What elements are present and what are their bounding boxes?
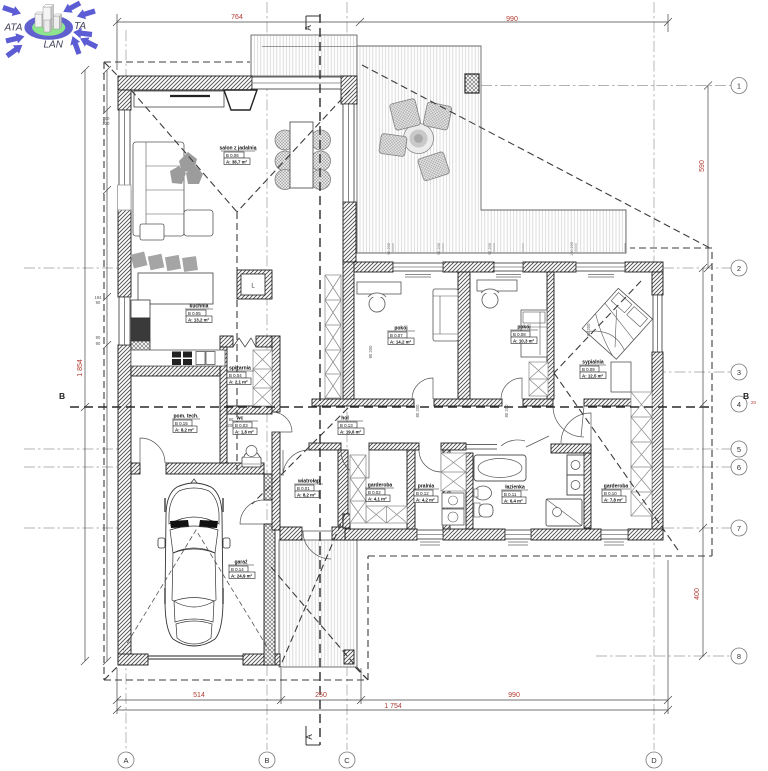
svg-text:1: 1 [737,82,741,91]
svg-text:80 200: 80 200 [586,323,591,336]
svg-text:A: 14,2 m²: A: 14,2 m² [390,339,412,344]
svg-text:80: 80 [96,335,101,340]
svg-text:A: 10,3 m²: A: 10,3 m² [513,338,535,343]
svg-text:ATA: ATA [4,23,23,34]
svg-text:2: 2 [737,264,741,273]
svg-text:garderoba: garderoba [368,483,393,489]
svg-text:B 0.08: B 0.08 [513,332,526,337]
svg-text:pralnia: pralnia [418,484,435,490]
svg-text:A: A [305,734,314,740]
svg-text:A: 24,9 m²: A: 24,9 m² [231,573,253,578]
svg-text:B 0.15: B 0.15 [175,421,188,426]
svg-text:B: B [264,756,269,765]
svg-text:B 0.06: B 0.06 [226,153,239,158]
svg-text:7: 7 [737,524,741,533]
svg-text:A: 7,8 m²: A: 7,8 m² [604,497,623,502]
svg-text:A: 8,2 m²: A: 8,2 m² [175,427,194,432]
svg-text:hol: hol [341,416,349,422]
svg-text:pokój: pokój [394,326,408,332]
svg-text:pokój: pokój [517,325,531,331]
svg-text:90 200: 90 200 [437,243,441,255]
svg-text:B 0.05: B 0.05 [188,311,201,316]
svg-text:1 854: 1 854 [77,359,84,377]
svg-text:B 0.11: B 0.11 [504,492,517,497]
svg-text:764: 764 [231,14,243,21]
svg-text:220: 220 [103,121,111,126]
svg-text:1 754: 1 754 [384,703,402,710]
svg-text:B 0.09: B 0.09 [582,367,595,372]
svg-text:990: 990 [506,16,518,23]
svg-text:C: C [344,756,350,765]
svg-text:B 0.14: B 0.14 [231,567,244,572]
svg-text:B: B [59,391,65,401]
svg-text:B 0.02: B 0.02 [368,490,381,495]
svg-text:6: 6 [737,463,741,472]
svg-text:B 0.13: B 0.13 [340,423,353,428]
svg-text:90: 90 [96,300,101,305]
svg-text:80 200: 80 200 [415,404,420,417]
svg-text:8: 8 [737,652,741,661]
svg-text:B 0.03: B 0.03 [235,423,248,428]
svg-text:90: 90 [96,341,101,346]
svg-text:A: 6,4 m²: A: 6,4 m² [504,498,523,503]
svg-text:łazienka: łazienka [505,485,525,491]
svg-text:5: 5 [737,445,741,454]
svg-text:B 0.10: B 0.10 [604,491,617,496]
svg-text:590: 590 [699,160,706,172]
svg-text:90 200: 90 200 [368,345,373,358]
svg-text:90 200: 90 200 [387,243,391,255]
svg-text:pom. tech.: pom. tech. [173,414,199,420]
svg-text:kuchnia: kuchnia [190,304,209,310]
svg-text:A: 2,1 m²: A: 2,1 m² [229,379,248,384]
svg-text:B 0.04: B 0.04 [229,373,242,378]
svg-text:150 200: 150 200 [570,242,574,256]
svg-text:garaż: garaż [234,560,248,566]
svg-text:90 200: 90 200 [488,243,492,255]
svg-text:250: 250 [315,692,327,699]
svg-text:wc: wc [236,416,244,422]
svg-text:B 0.01: B 0.01 [297,486,310,491]
svg-text:990: 990 [508,692,520,699]
svg-text:A: 1,8 m²: A: 1,8 m² [235,429,254,434]
svg-text:sypialnia: sypialnia [582,360,604,366]
svg-text:A: 13,2 m²: A: 13,2 m² [188,317,210,322]
svg-text:A: 4,2 m²: A: 4,2 m² [416,497,435,502]
svg-text:3: 3 [737,368,741,377]
svg-text:A: 38,7 m²: A: 38,7 m² [226,159,248,164]
svg-text:A: A [123,756,128,765]
svg-text:wiatrołap: wiatrołap [297,479,320,485]
svg-text:A: A [304,25,313,31]
svg-text:A: 8,2 m²: A: 8,2 m² [297,492,316,497]
svg-text:A: 12,5 m²: A: 12,5 m² [582,373,604,378]
svg-text:D: D [651,756,657,765]
svg-text:B 0.12: B 0.12 [416,491,429,496]
svg-text:LAN: LAN [44,40,64,51]
svg-text:400: 400 [694,588,701,600]
svg-text:4: 4 [737,400,741,409]
svg-text:A: 19,6 m²: A: 19,6 m² [340,429,362,434]
svg-text:salon z jadalnią: salon z jadalnią [220,146,257,152]
svg-text:514: 514 [193,692,205,699]
svg-text:B: B [743,391,749,401]
svg-text:80 200: 80 200 [504,404,509,417]
svg-text:20: 20 [751,400,757,405]
svg-text:TA: TA [74,21,86,32]
svg-text:garderoba: garderoba [604,484,629,490]
svg-text:B 0.07: B 0.07 [390,333,403,338]
svg-text:A: 4,1 m²: A: 4,1 m² [368,496,387,501]
svg-text:spiżarnia: spiżarnia [229,366,251,372]
